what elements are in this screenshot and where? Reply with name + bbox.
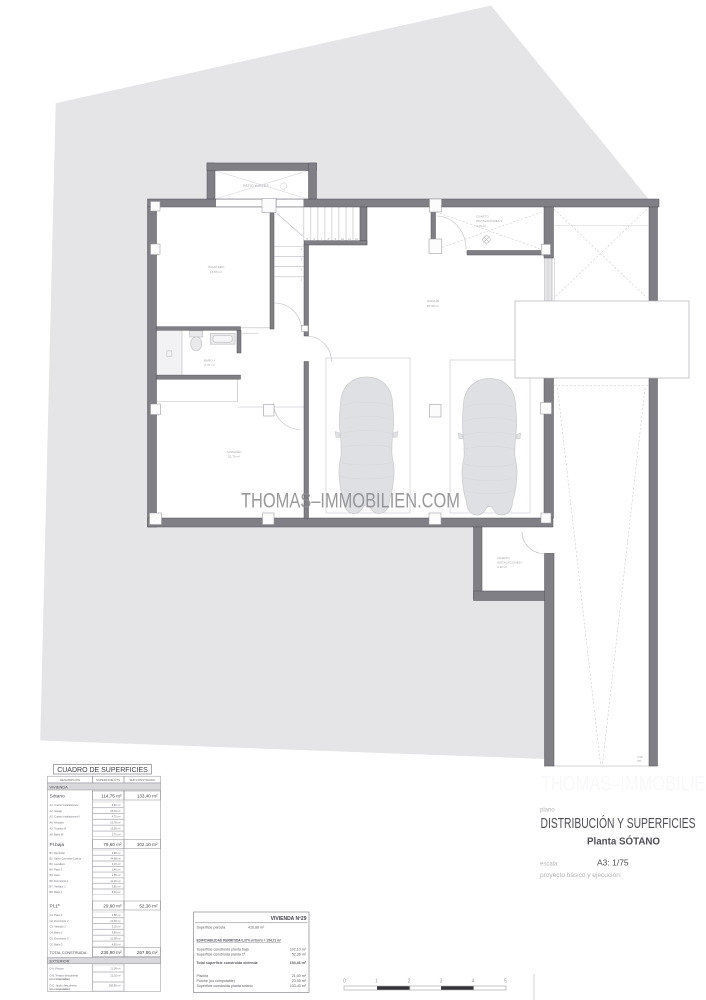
svg-text:B2. Salón Comedor-Cocina: B2. Salón Comedor-Cocina xyxy=(50,856,82,860)
svg-text:plano: plano xyxy=(540,808,555,814)
svg-text:B6. Dormitorio 1: B6. Dormitorio 1 xyxy=(50,879,69,883)
svg-text:B8. Baño 1: B8. Baño 1 xyxy=(50,890,63,894)
svg-text:SUP.CONSTRUIDA: SUP.CONSTRUIDA xyxy=(129,778,155,782)
svg-text:TOTAL CONSTRUIDA: TOTAL CONSTRUIDA xyxy=(50,951,87,955)
svg-text:escala: escala xyxy=(540,862,558,868)
svg-text:22,70 m²: 22,70 m² xyxy=(228,454,240,458)
svg-text:C5. Dormitorio 3: C5. Dormitorio 3 xyxy=(50,937,69,941)
svg-text:236,90 m²: 236,90 m² xyxy=(101,950,122,955)
svg-text:2,70 m²: 2,70 m² xyxy=(204,363,215,367)
svg-text:3,30 m²: 3,30 m² xyxy=(497,565,507,569)
svg-text:23,95 m²: 23,95 m² xyxy=(292,979,307,983)
svg-text:102,10 m²: 102,10 m² xyxy=(137,842,158,847)
svg-text:A2. Garaje: A2. Garaje xyxy=(50,809,63,813)
svg-text:Sótano: Sótano xyxy=(50,794,66,800)
svg-text:3,80 m²: 3,80 m² xyxy=(112,884,121,888)
svg-text:2,70 m²: 2,70 m² xyxy=(112,832,121,836)
svg-text:52,36 m²: 52,36 m² xyxy=(139,904,158,909)
svg-text:2,50 m²: 2,50 m² xyxy=(112,913,121,917)
svg-text:A3: 1/75: A3: 1/75 xyxy=(597,858,629,868)
svg-text:B5. Aseo: B5. Aseo xyxy=(50,873,61,877)
svg-text:C6. Baño 3: C6. Baño 3 xyxy=(50,942,64,946)
svg-text:22,02 m²: 22,02 m² xyxy=(110,974,120,978)
svg-text:THOMAS–IMMOBILIEN.COM: THOMAS–IMMOBILIEN.COM xyxy=(541,772,706,796)
svg-text:DISTRIBUCIÓN Y SUPERFICIES: DISTRIBUCIÓN Y SUPERFICIES xyxy=(541,815,696,832)
svg-text:52,36 m²: 52,36 m² xyxy=(292,953,307,957)
svg-text:4,46 m²: 4,46 m² xyxy=(112,803,121,807)
svg-text:12: 12 xyxy=(355,237,358,241)
svg-text:VIVIENDA Nº29: VIVIENDA Nº29 xyxy=(271,916,307,922)
svg-text:Piscina: Piscina xyxy=(197,974,209,978)
svg-text:3: 3 xyxy=(440,979,443,985)
svg-text:22,78 m²: 22,78 m² xyxy=(110,821,120,825)
svg-text:3,99 m²: 3,99 m² xyxy=(112,851,121,855)
svg-text:EXTERIOR: EXTERIOR xyxy=(50,959,70,964)
svg-text:Planta SÓTANO: Planta SÓTANO xyxy=(587,835,660,848)
svg-text:CUADRO DE SUPERFICIES: CUADRO DE SUPERFICIES xyxy=(57,767,148,774)
svg-text:13,05 m²: 13,05 m² xyxy=(210,270,222,274)
svg-text:21,00 m²: 21,00 m² xyxy=(292,974,307,978)
svg-text:44,88 m²: 44,88 m² xyxy=(110,856,120,860)
svg-text:29,90 m²: 29,90 m² xyxy=(103,904,122,909)
svg-text:TRASTERO: TRASTERO xyxy=(208,265,225,269)
svg-text:95,50 m²: 95,50 m² xyxy=(427,304,439,308)
svg-text:3,65 m²: 3,65 m² xyxy=(112,931,121,935)
svg-text:D.A. Piscina: D.A. Piscina xyxy=(50,967,65,971)
svg-text:(no computable): (no computable) xyxy=(50,987,70,991)
svg-text:A4. Almacén: A4. Almacén xyxy=(50,821,65,825)
svg-text:416,68 m²: 416,68 m² xyxy=(248,926,265,930)
svg-text:CUARTO: CUARTO xyxy=(497,556,510,560)
svg-text:10,60 m²: 10,60 m² xyxy=(110,919,120,923)
svg-text:Superficie parcela: Superficie parcela xyxy=(197,926,226,930)
svg-text:Total superficie construida vi: Total superficie construida vivienda xyxy=(197,961,259,965)
svg-text:1,46 m²: 1,46 m² xyxy=(112,868,121,872)
svg-text:8,40 m²: 8,40 m² xyxy=(112,890,121,894)
svg-text:PATIO INGLES: PATIO INGLES xyxy=(243,184,270,188)
svg-text:(no computable): (no computable) xyxy=(50,977,70,981)
svg-text:21,08 m²: 21,08 m² xyxy=(110,967,120,971)
svg-text:1: 1 xyxy=(375,979,378,985)
svg-text:GARAJE: GARAJE xyxy=(427,299,439,303)
svg-text:INSTALACIONES I: INSTALACIONES I xyxy=(497,561,523,565)
svg-text:4,50 m²: 4,50 m² xyxy=(112,942,121,946)
svg-text:267,86 m²: 267,86 m² xyxy=(137,950,158,955)
svg-text:Pl.1ª: Pl.1ª xyxy=(50,904,60,910)
svg-text:133,40 m²: 133,40 m² xyxy=(137,794,158,799)
svg-text:380,85 m²: 380,85 m² xyxy=(109,984,121,988)
svg-text:79,60 m²: 79,60 m² xyxy=(103,842,122,847)
svg-text:11,30 m²: 11,30 m² xyxy=(110,879,120,883)
svg-text:C2. Dormitorio 2: C2. Dormitorio 2 xyxy=(50,919,69,923)
svg-text:THOMAS–IMMOBILIEN.COM: THOMAS–IMMOBILIEN.COM xyxy=(241,489,460,513)
svg-text:5: 5 xyxy=(504,979,507,985)
svg-text:11: 11 xyxy=(348,237,351,241)
svg-text:102,10 m²: 102,10 m² xyxy=(290,948,307,952)
svg-text:A6. Baño W: A6. Baño W xyxy=(50,832,64,836)
svg-text:A3. Cuarto Instalaciones II: A3. Cuarto Instalaciones II xyxy=(50,815,81,819)
svg-text:4: 4 xyxy=(472,979,475,985)
svg-text:10: 10 xyxy=(341,237,344,241)
svg-text:ALMACÉN: ALMACÉN xyxy=(227,449,242,454)
svg-text:B4. Paso 1: B4. Paso 1 xyxy=(50,868,63,872)
svg-text:BAÑO 1: BAÑO 1 xyxy=(204,357,216,362)
svg-text:B1. Recibidor: B1. Recibidor xyxy=(50,851,66,855)
svg-text:B7. Vestidor 1: B7. Vestidor 1 xyxy=(50,884,67,888)
svg-text:10,98 m²: 10,98 m² xyxy=(110,937,120,941)
svg-text:5%: 5% xyxy=(638,759,643,763)
svg-text:C4. Baño 2: C4. Baño 2 xyxy=(50,931,64,935)
svg-text:A5. Trastero B: A5. Trastero B xyxy=(50,827,67,831)
svg-text:114,75 m²: 114,75 m² xyxy=(101,794,122,799)
svg-text:Superficie construida planta s: Superficie construida planta sótano xyxy=(197,984,253,988)
svg-text:INSTALACIONES II: INSTALACIONES II xyxy=(476,219,502,223)
svg-text:Pl.baja: Pl.baja xyxy=(50,842,65,848)
svg-text:133,40 m²: 133,40 m² xyxy=(290,984,307,988)
svg-text:65,30 m²: 65,30 m² xyxy=(110,809,120,813)
svg-text:13,05 m²: 13,05 m² xyxy=(110,827,120,831)
svg-text:C3. Vestidor 2: C3. Vestidor 2 xyxy=(50,925,67,929)
svg-text:3,15 m²: 3,15 m² xyxy=(112,862,121,866)
svg-text:C1. Paso 2: C1. Paso 2 xyxy=(50,913,63,917)
svg-text:154,46 m²: 154,46 m² xyxy=(290,961,307,965)
svg-text:DESCRIPCIÓN: DESCRIPCIÓN xyxy=(60,777,80,782)
svg-text:proyecto básico y ejecución:: proyecto básico y ejecución: xyxy=(540,872,622,879)
svg-text:Superficie construida planta b: Superficie construida planta baja xyxy=(197,948,249,952)
svg-text:Porche (no computable): Porche (no computable) xyxy=(197,979,235,983)
svg-text:4,75 m²: 4,75 m² xyxy=(476,224,486,228)
svg-text:4,75 m²: 4,75 m² xyxy=(112,815,121,819)
svg-text:EDIFICABILIDAD PERMITIDA 0,37: EDIFICABILIDAD PERMITIDA 0,37% m²t/m²s =… xyxy=(197,939,281,943)
svg-text:B3. Lavadero: B3. Lavadero xyxy=(50,862,66,866)
svg-text:3,20 m²: 3,20 m² xyxy=(112,925,121,929)
svg-text:2: 2 xyxy=(408,979,411,985)
svg-text:A1. Cuarto Instalaciones I: A1. Cuarto Instalaciones I xyxy=(50,803,80,807)
svg-text:CUARTO: CUARTO xyxy=(476,215,489,219)
svg-text:0: 0 xyxy=(343,979,346,985)
svg-text:1,55 m²: 1,55 m² xyxy=(112,873,121,877)
svg-text:SUPERFICIE ÚTIL: SUPERFICIE ÚTIL xyxy=(96,778,121,782)
svg-text:VIVIENDA: VIVIENDA xyxy=(50,785,69,790)
svg-text:Superficie construida planta 1: Superficie construida planta 1ª xyxy=(197,953,246,957)
